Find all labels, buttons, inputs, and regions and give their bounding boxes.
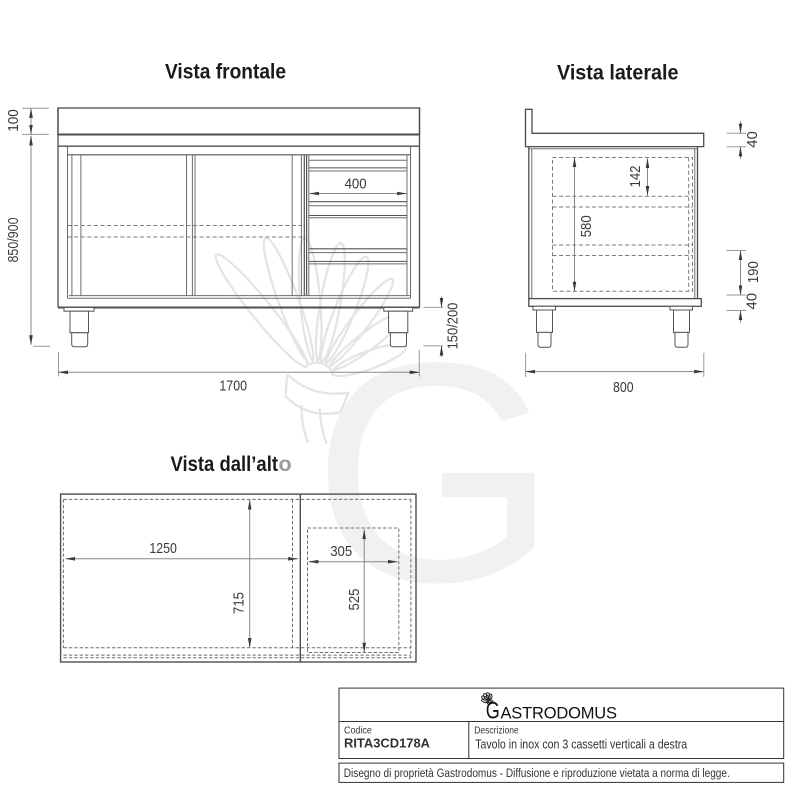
svg-text:850/900: 850/900 bbox=[5, 218, 22, 263]
svg-text:40: 40 bbox=[744, 293, 761, 310]
svg-text:o: o bbox=[279, 452, 292, 476]
svg-text:Disegno di proprietà Gastrodom: Disegno di proprietà Gastrodomus - Diffu… bbox=[344, 768, 730, 780]
svg-text:100: 100 bbox=[5, 109, 22, 132]
svg-text:40: 40 bbox=[744, 131, 761, 148]
svg-text:Codice: Codice bbox=[344, 725, 372, 737]
svg-text:1700: 1700 bbox=[219, 377, 247, 394]
svg-text:ASTRODOMUS: ASTRODOMUS bbox=[501, 705, 618, 723]
svg-text:RITA3CD178A: RITA3CD178A bbox=[344, 737, 430, 751]
svg-text:190: 190 bbox=[745, 261, 762, 283]
svg-text:Vista dall’alt: Vista dall’alt bbox=[171, 452, 279, 476]
svg-text:715: 715 bbox=[230, 592, 247, 614]
svg-text:Tavolo in inox con 3 cassetti: Tavolo in inox con 3 cassetti verticali … bbox=[475, 737, 687, 751]
svg-text:150/200: 150/200 bbox=[444, 303, 461, 350]
svg-text:1250: 1250 bbox=[149, 540, 177, 557]
svg-text:G: G bbox=[486, 698, 500, 725]
svg-text:Vista frontale: Vista frontale bbox=[165, 60, 286, 84]
svg-text:580: 580 bbox=[578, 215, 595, 237]
svg-text:800: 800 bbox=[613, 379, 634, 396]
svg-text:400: 400 bbox=[345, 176, 367, 193]
svg-text:305: 305 bbox=[330, 543, 352, 560]
svg-text:142: 142 bbox=[627, 166, 644, 188]
svg-text:Descrizione: Descrizione bbox=[474, 725, 519, 737]
svg-text:525: 525 bbox=[346, 589, 363, 611]
svg-text:Vista laterale: Vista laterale bbox=[557, 61, 679, 85]
